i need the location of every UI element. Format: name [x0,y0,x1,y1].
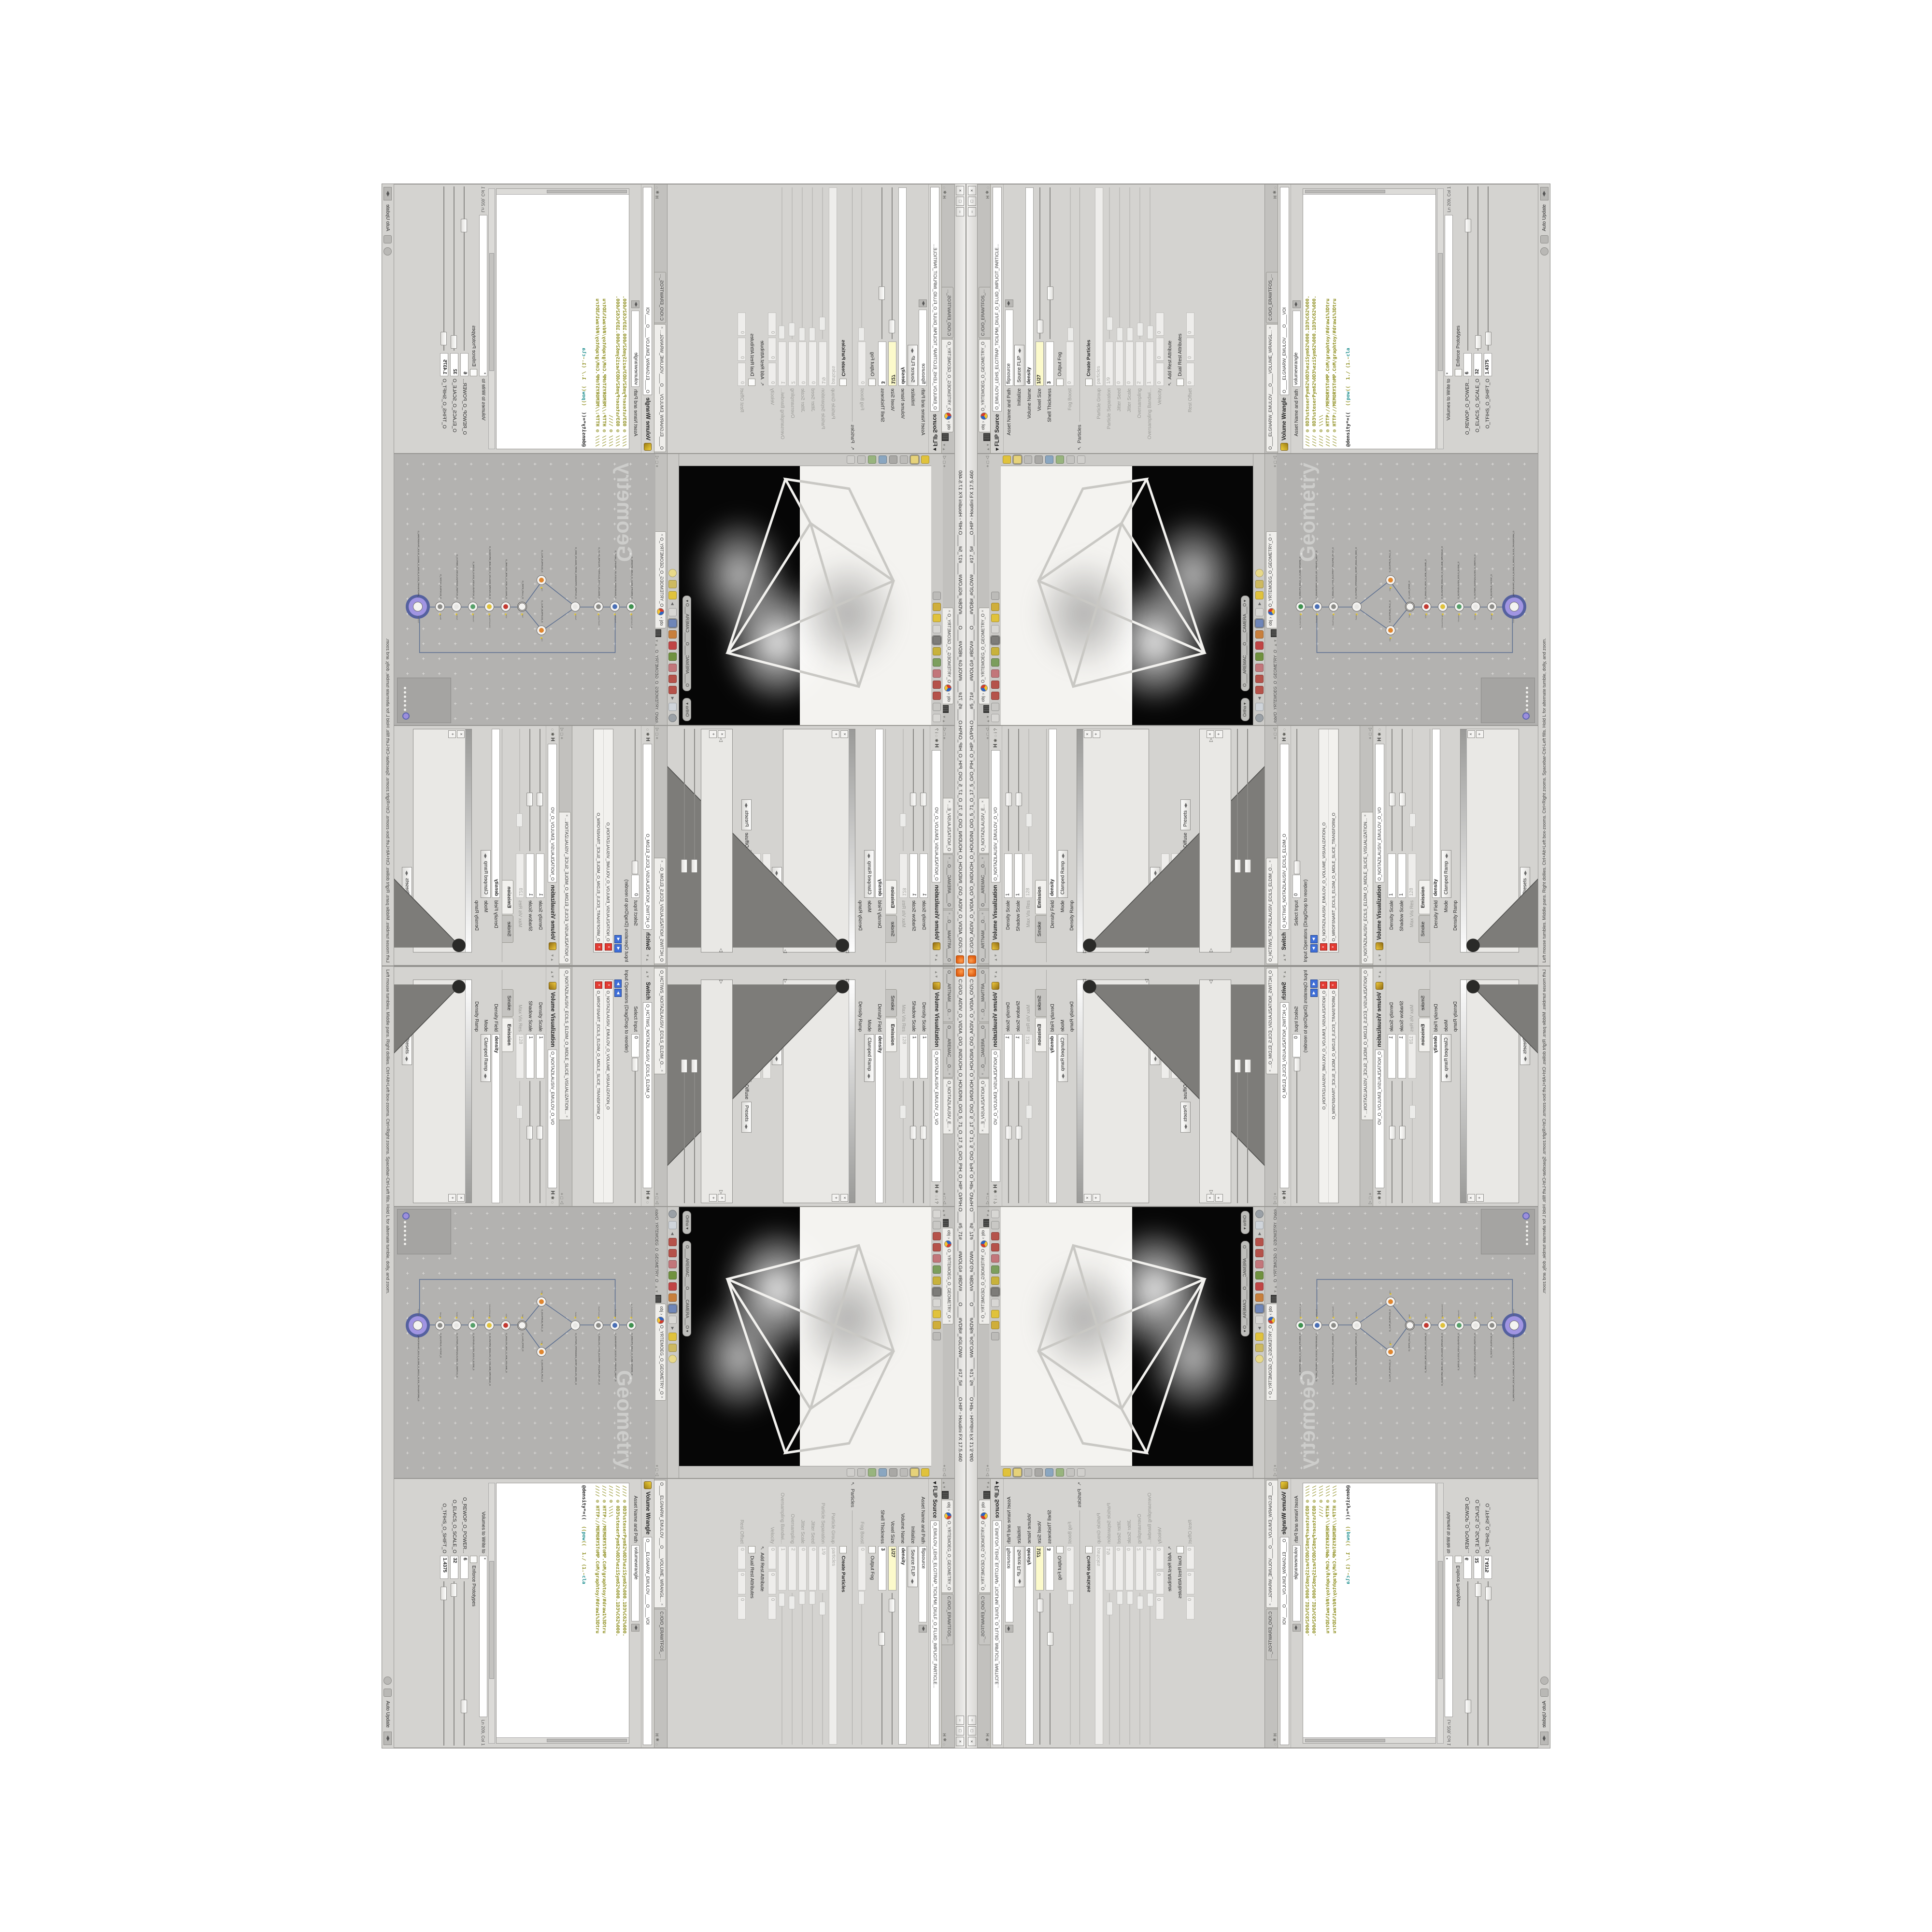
max-vis-res-slider[interactable] [1025,729,1032,851]
code-scrollbar[interactable] [1303,1737,1435,1743]
lasso-tool-icon[interactable] [933,1321,941,1329]
close-button[interactable]: × [968,1737,976,1746]
view-tool-icon[interactable] [991,1288,999,1296]
density-scale-field[interactable]: 1 [920,1034,928,1079]
asset-path-field[interactable]: flipsource [919,1546,927,1622]
rest-offset-x-field[interactable]: 0 [738,1546,746,1569]
flip-pane-tab[interactable]: obj›O_YRTEMOEG_O_GEOMETRY_O [979,1500,990,1593]
list-item[interactable]: ×O_NOITAZILAUSIV_EMULOV_O_VOLUME_VISUALI… [603,980,613,1203]
density-ramp-widget[interactable]: ×+ [1460,980,1519,1203]
pane-tab-camera[interactable]: O____AREMAC___O...× [942,854,953,909]
vex-code-editor[interactable]: //// ⊙ 0D3%steserPym62%0D3%eziSym62%000.… [1303,1483,1436,1744]
pose-tool-icon[interactable] [669,1293,677,1302]
network-node[interactable]: O_EREHPS_EBUC_O_CUBE_SPHERE_Oan_CubeSphe… [625,600,638,613]
nav-up-icon[interactable]: ▲ [551,958,555,962]
stepper-icon[interactable]: ◀▶ [1005,1625,1013,1633]
shell-thickness-slider[interactable] [1046,187,1053,339]
brush-tool-icon[interactable] [933,592,941,600]
tab-close-icon[interactable]: × [654,1396,664,1398]
density-field-input[interactable]: density [1432,729,1440,898]
search-icon[interactable]: ◌ [934,735,939,737]
network-node[interactable]: O_EMARFERIW_NOGYLOP_EREHPS_EBUC_OBodyWir… [1311,1319,1323,1332]
auto-update-stepper[interactable]: ◀▶ [1540,187,1548,200]
shell-thickness-field[interactable]: 3 [878,1546,886,1591]
search-icon[interactable]: ◌ [645,728,650,731]
output-fog-checkbox[interactable] [1056,379,1064,386]
max-vis-res-field[interactable]: 128 [1024,1034,1033,1079]
help-icon[interactable]: ? [934,728,939,731]
nav-down-icon[interactable]: ▼ [935,975,939,979]
pane-split-icon[interactable]: + [942,1464,947,1467]
shadow-scale-field[interactable]: 1 [1014,1034,1023,1079]
rest-offset-y-field[interactable]: 0 [1186,1571,1194,1594]
oversampling-slider[interactable] [1136,187,1143,339]
voxel-size-field[interactable]: 1/27 [888,341,896,386]
ramp-delete-icon[interactable]: × [840,1194,848,1202]
tab-smoke[interactable]: Smoke [886,915,897,943]
jitter-seed-slider[interactable] [809,1593,816,1745]
shell-thickness-field[interactable]: 3 [878,341,886,386]
network-node[interactable]: O_ECAFRUS_PILC_OClip [1384,574,1397,586]
magnet-icon[interactable] [669,1238,677,1246]
film-reel-icon[interactable] [669,714,677,722]
shell-thickness-slider[interactable] [1046,1593,1053,1745]
jitter-scale-slider[interactable] [799,187,806,339]
diffuse-ramp-widget[interactable]: ▷ ▷ ×+ [1199,729,1231,952]
viewport-pane-tab[interactable]: obj›O_YRTEMOEG_O_GEOMETRY_O× [979,608,990,704]
voxel-size-slider[interactable] [889,1593,896,1745]
velocity-y-field[interactable]: 0 [1156,338,1164,361]
particles-section-header[interactable]: ↖Particles [1075,1482,1084,1745]
tab-close-icon[interactable]: × [942,800,952,803]
tab-close-icon[interactable]: × [1363,814,1373,817]
ghost-icon[interactable] [889,1468,897,1477]
density-scale-slider[interactable] [537,1081,544,1203]
magnet-snap-icon[interactable] [991,1232,999,1240]
scatter-icon[interactable] [1255,653,1264,661]
keyframe-icon[interactable] [669,591,677,599]
lens-icon[interactable] [879,456,887,464]
snapshot-icon[interactable] [847,1468,855,1477]
ramp-add-icon[interactable]: + [709,730,717,738]
restore-button[interactable]: □ [956,1726,965,1735]
code-scrollbar[interactable] [497,189,629,195]
shadow-scale-field[interactable]: 1 [1398,1034,1406,1079]
node-name-field[interactable]: O_NOITAZILAUSIV_EMULOV_O_VO [1375,1050,1384,1188]
cursor-icon[interactable] [669,608,677,616]
info-icon[interactable]: i [934,732,939,733]
ghost-icon[interactable] [1035,456,1043,464]
keyframe-icon[interactable] [1255,1333,1264,1341]
search-icon[interactable]: ◌ [942,186,947,189]
brush-tool-icon[interactable] [933,1332,941,1340]
node-name-field[interactable]: O_NOITAZILAUSIV_EMULOV_O_VO [548,1050,557,1188]
minimize-button[interactable]: – [968,207,976,216]
delete-icon[interactable]: × [595,981,602,989]
jitter-seed-field[interactable]: 0 [1115,341,1123,386]
scatter-icon[interactable] [1255,1271,1264,1279]
initialize-dropdown[interactable]: Source FLIP◀▶ [1014,1546,1024,1587]
search-icon[interactable]: ◌ [942,1743,947,1746]
tab-emission[interactable]: Emission [886,880,897,914]
auto-update-label[interactable]: Auto Update [1542,204,1547,231]
network-editor-canvas[interactable]: ++++++++++++++++++++++++++++++++++++++++… [394,1207,655,1478]
node-name-field[interactable]: O_NOITAZILAUSIV_EMULOV_O_VO [932,1050,941,1182]
jack-tool-icon[interactable] [1255,1282,1264,1291]
snapshot-icon[interactable] [1077,456,1085,464]
ramp-add-icon[interactable]: + [709,1194,717,1202]
particle-separation-slider[interactable] [819,187,826,339]
wrangle-pane-tab[interactable]: O____ELGNARW_EMULOV___O____VOLUME_WRANGL… [1266,1480,1278,1608]
oversampling-slider[interactable] [789,1593,796,1745]
ramp-add-icon[interactable]: + [448,730,456,738]
network-pane-tab[interactable]: obj›O_YRTEMOEG_O_GEOMETRY_O× [1266,531,1278,628]
pane-split-icon[interactable]: + [1368,737,1373,739]
scale-field[interactable]: 32 [1474,353,1482,376]
wireframe-icon[interactable] [1024,456,1032,464]
density-ramp-widget[interactable]: ×+ [413,980,472,1203]
code-hscrollbar[interactable] [488,1483,495,1744]
gear-icon[interactable]: ✱ [550,1196,555,1200]
magnet-snap-icon[interactable] [933,692,941,700]
network-node[interactable]: O_HCTIWS_YRTEMOEG_MORF_EMULOV_BDV_OSwitc… [569,600,582,613]
paint-tool-icon[interactable] [991,658,999,667]
initialize-dropdown[interactable]: Source FLIP◀▶ [1014,345,1024,386]
network-node[interactable]: O_EMARFERIW_NOGYLOP_EREHPS_EBUC_OBodyWir… [609,600,621,613]
scale-slider[interactable] [451,186,458,351]
camera-pill[interactable]: O____AREMAC____O____CAMERA___O ▾ [682,596,691,691]
max-vis-res-slider[interactable] [1408,1081,1416,1203]
tab-emission[interactable]: Emission [1035,1018,1046,1051]
pane-maximize-icon[interactable]: □ [560,1197,565,1199]
info-icon[interactable]: i [934,1199,939,1200]
key-tool-icon[interactable] [933,647,941,655]
tab-close-icon[interactable]: × [654,860,664,863]
oversampling-bandwidth-slider[interactable] [779,187,786,339]
switch-pane-tab[interactable]: O_HCTIWS_NOITAZILAUSIV_ECILS_ELDIM_O...× [1266,968,1278,1074]
vex-code-editor[interactable]: //// ⊙ 0D3%steserPym62%0D3%eziSym62%000.… [1303,188,1436,449]
jitter-seed-field[interactable]: 0 [809,1546,817,1591]
render-view[interactable]: Ortho ▾ O____AREMAC____O____CAMERA___O ▾ [1001,1207,1253,1466]
velocity-x-field[interactable]: 0 [1156,1546,1164,1569]
voxel-size-field[interactable]: 1/27 [1036,1546,1044,1591]
ramp-flag-icon[interactable]: ▷ [718,1190,724,1194]
density-scale-field[interactable]: 1 [1388,853,1396,898]
gear-icon[interactable]: ✱ [645,1196,651,1200]
oversampling-bandwidth-field[interactable]: 1 [778,341,786,386]
volume-name-field[interactable]: density [1025,1546,1034,1745]
ramp-delete-icon[interactable]: × [1084,730,1092,738]
network-node[interactable]: O_EREHPS_EBUC_O_CUBE_SPHERE_Oan_CubeSphe… [1294,600,1307,613]
tab-close-icon[interactable]: × [942,857,952,859]
ramp-delete-icon[interactable]: × [1467,1194,1475,1202]
code-hscrollbar[interactable] [1437,1483,1444,1744]
search-icon[interactable]: ◌ [1273,1743,1278,1746]
network-minimap[interactable] [1481,678,1535,723]
dual-rest-checkbox[interactable] [748,1546,755,1553]
mode-dropdown[interactable]: Clamped Ramp◀▶ [864,1034,874,1082]
density-scale-field[interactable]: 1 [536,853,544,898]
ramp-flag-icon[interactable]: ▷ [718,980,724,984]
tab-close-icon[interactable]: × [980,610,990,612]
shift-slider[interactable] [1484,1581,1492,1746]
particle-separation-field[interactable]: 1/9 [1105,1546,1113,1591]
stepper-icon[interactable]: ◀▶ [919,299,927,307]
delete-icon[interactable]: × [1330,981,1337,989]
particles-section-header[interactable]: ↖Particles [848,187,857,450]
diamond-icon[interactable] [1255,580,1264,588]
nav-up-icon[interactable]: ▲ [986,447,990,451]
tab-smoke[interactable]: Smoke [502,989,513,1017]
search-icon[interactable]: ◌ [655,186,660,189]
asset-path-field[interactable]: flipsource [1005,310,1013,386]
enforce-prototypes-checkbox[interactable] [1455,369,1462,376]
help-icon[interactable]: ? [993,728,998,731]
cursor-icon[interactable] [1255,608,1264,616]
magnet-icon[interactable] [669,686,677,694]
rest-offset-x-field[interactable]: 0 [1186,363,1194,386]
network-node[interactable]: O_EMULOV_LEHS_ELCITRAP_TICILPMI_DIULF_OB… [592,1319,605,1332]
enforce-prototypes-checkbox[interactable] [1455,1556,1462,1563]
create-particles-checkbox[interactable] [1085,1546,1093,1553]
view-tool-icon[interactable] [933,636,941,644]
code-scrollbar[interactable] [497,1737,629,1743]
lasso-tool-icon[interactable] [991,1321,999,1329]
network-node[interactable]: O_ECAFRUS_HCTAP_OMerge [1486,600,1498,613]
search-icon[interactable]: ◌ [993,735,998,737]
pane-split-icon[interactable]: + [655,1464,660,1467]
select-input-slider[interactable] [1293,1060,1300,1203]
density-field-input[interactable]: density [1049,1034,1057,1203]
tab-close-icon[interactable]: × [1268,1603,1278,1605]
pane-tab-visualization[interactable]: O_NOITAZILAUSIV_E...× [942,1079,953,1134]
tab-close-icon[interactable]: × [942,610,952,612]
film-reel-icon[interactable] [669,1210,677,1218]
reorder-left-icon[interactable]: ◀ [614,944,622,952]
lock-camera-icon[interactable] [857,456,866,464]
pane-tab-camera[interactable]: O____AREMAC___O...× [979,854,990,909]
network-node[interactable]: O_ELGNARW_EMULOV_O_VOLUME_WRANGLE_OVolum… [483,1319,496,1332]
nav-up-icon[interactable]: ▲ [994,970,998,974]
auto-update-stepper[interactable]: ◀▶ [1540,1732,1548,1745]
ramp-add-icon[interactable]: + [1476,1194,1484,1202]
rest-offset-y-field[interactable]: 0 [738,1571,746,1594]
network-node[interactable]: O_EREHPS_EBUC_O_CUBE_SPHERE_Oan_CubeSphe… [1294,1319,1307,1332]
view-mode-pill[interactable]: Ortho ▾ [682,698,691,721]
pane-split-icon[interactable]: + [655,465,660,467]
render-view[interactable]: Ortho ▾ O____AREMAC____O____CAMERA___O ▾ [679,1207,931,1466]
jitter-scale-slider[interactable] [1126,187,1133,339]
search-icon[interactable]: ◌ [645,1201,650,1204]
volumes-to-write-field[interactable]: * [1445,1556,1453,1717]
gear-icon[interactable]: ✱ [942,1738,947,1742]
volume-name-field[interactable]: density [898,1546,907,1745]
ramp-flag-icon[interactable]: ▷ [782,949,788,953]
restore-button[interactable]: □ [956,197,965,206]
reorder-left-icon[interactable]: ◀ [1310,935,1318,943]
tab-close-icon[interactable]: × [1268,1396,1278,1398]
ramp-flag-icon[interactable]: ▷ [782,979,788,983]
nav-down-icon[interactable]: ▼ [646,975,650,979]
select-input-field[interactable]: 0 [631,1034,639,1057]
snapshot-icon[interactable] [847,456,855,464]
jitter-scale-field[interactable]: 0 [798,1546,807,1591]
network-node[interactable]: O_MROFSNART_ECILS_ELDIM_O_MIDLE_SLICE_TR… [1508,1319,1520,1332]
pane-maximize-icon[interactable]: □ [655,1197,660,1199]
mode-dropdown[interactable]: Clamped Ramp◀▶ [481,850,491,898]
nav-up-icon[interactable]: ▲ [646,970,650,974]
network-node[interactable]: O_NOITAZILAUSIV_ECILS_ELDIM_OVisualize [467,1319,479,1332]
network-node[interactable]: O_NOITAZILAUSIV_ECILS_ELDIM_OVisualize [1453,600,1465,613]
switch-pane-tab[interactable]: O_HCTIWS_NOITAZILAUSIV_ECILS_ELDIM_O...× [654,858,666,964]
network-node[interactable]: O_ECAFRUB_PILC_OClip [535,624,548,637]
magnet-point-icon[interactable] [933,669,941,678]
gear-icon[interactable]: ✱ [934,1190,939,1193]
node-name-field[interactable]: O_NOITAZILAUSIV_EMULOV_O_VO [991,750,1000,882]
network-node[interactable]: O_ECAFRUS_HCTAP_OMerge [1486,1319,1498,1332]
particle-separation-field[interactable]: 1/9 [819,1546,827,1591]
tab-smoke[interactable]: Smoke [1035,989,1046,1017]
lens-icon[interactable] [879,1468,887,1477]
jitter-scale-field[interactable]: 0 [798,341,807,386]
nav-up-icon[interactable]: ▲ [551,970,555,974]
select-tool-icon[interactable] [991,1210,999,1218]
node-name-field[interactable]: O_HCTIWS_NOITAZILAUSIV_ECILS_ELDIM_O [1280,744,1289,930]
network-node[interactable]: O_ECAFRUS_PILC_OClip [1384,1346,1397,1358]
scale-slider[interactable] [1474,1581,1481,1746]
render-flipbook-icon[interactable] [669,703,677,711]
density-field-input[interactable]: density [492,1034,500,1203]
shell-thickness-field[interactable]: 3 [1046,1546,1054,1591]
asset-path-field[interactable]: volumewrangle [631,1545,639,1621]
code-hscrollbar[interactable] [488,188,495,449]
ramp-delete-icon[interactable]: × [718,730,725,738]
shadow-scale-field[interactable]: 1 [1014,853,1023,898]
search-icon[interactable]: ◌ [934,1195,939,1197]
magnet-grid-icon[interactable] [991,681,999,689]
key-tool-icon[interactable] [991,1277,999,1285]
select-input-field[interactable]: 0 [631,875,639,898]
nav-down-icon[interactable]: ▼ [551,975,555,979]
mode-dropdown[interactable]: Clamped Ramp◀▶ [481,1034,491,1082]
network-node[interactable]: O_LLUN_ETAR_ONull [516,1319,528,1332]
auto-update-label[interactable]: Auto Update [1542,1701,1547,1728]
arrow-tool-icon[interactable] [991,1299,999,1307]
visualization-pane-tab[interactable]: O_NOITAZILAUSIV_ECILS_ELDIM_O_MIDLE_SLIC… [1361,968,1373,1120]
particle-group-field[interactable]: particles [1095,187,1103,386]
velocity-z-field[interactable]: 0 [768,313,776,336]
oversampling-field[interactable]: 2 [788,341,796,386]
velocity-y-field[interactable]: 0 [1156,1571,1164,1594]
select-tool-icon[interactable] [933,1210,941,1218]
reorder-left-icon[interactable]: ◀ [1310,944,1318,952]
refresh-icon[interactable] [1540,235,1548,243]
particle-separation-field[interactable]: 1/9 [1105,341,1113,386]
network-editor-canvas[interactable]: ++++++++++++++++++++++++++++++++++++++++… [394,454,655,725]
render-view[interactable]: Ortho ▾ O____AREMAC____O____CAMERA___O ▾ [1001,466,1253,725]
oversampling-slider[interactable] [789,187,796,339]
scatter-icon[interactable] [669,653,677,661]
ramp-flag-icon[interactable]: ▷ [845,949,850,953]
gear-icon[interactable]: ✱ [1272,1738,1278,1742]
network-node[interactable]: O_LLUN_ETAR_ONull [516,600,528,613]
view-mode-pill[interactable]: Ortho ▾ [1241,1211,1250,1234]
node-name-field[interactable]: O_EMULOV_LEHS_ELCITRAP_TICILPMI_DIULF_O_… [993,1520,1002,1745]
gear-icon[interactable]: ✱ [1272,190,1278,194]
pose-tool-icon[interactable] [669,630,677,639]
pane-maximize-icon[interactable]: □ [655,1469,660,1471]
nav-up-icon[interactable]: ▲ [1282,970,1287,974]
asset-path-field[interactable]: volumewrangle [1293,311,1301,387]
camera-pill[interactable]: O____AREMAC____O____CAMERA___O ▾ [1241,596,1250,691]
initialize-dropdown[interactable]: Source FLIP◀▶ [908,1546,918,1587]
ramp-delete-icon[interactable]: × [457,1194,465,1202]
minimize-button[interactable]: – [956,1716,965,1725]
key-tool-icon[interactable] [991,647,999,655]
view-cube-icon[interactable] [1255,619,1264,627]
cursor-icon[interactable] [1255,1316,1264,1324]
grid-toggle-icon[interactable] [1056,1468,1064,1477]
select-input-slider[interactable] [1293,729,1300,872]
point-no-slider[interactable] [1234,729,1241,872]
scale-field[interactable]: 32 [450,353,458,376]
magnet-multi-icon[interactable] [669,1249,677,1257]
density-ramp-widget[interactable]: ▷ ▷ ×+ [783,729,855,952]
pose-tool-icon[interactable] [1255,1293,1264,1302]
voxel-size-field[interactable]: 1/27 [888,1546,896,1591]
flip-pane-tab[interactable]: obj›O_YRTEMOEG_O_GEOMETRY_O [979,339,990,432]
max-vis-res-field[interactable]: 128 [899,1034,908,1079]
power-field[interactable]: 6 [1463,353,1472,376]
dual-rest-checkbox[interactable] [1177,1546,1184,1553]
restore-button[interactable]: □ [968,197,976,206]
max-vis-res-field[interactable]: 128 [1408,1034,1416,1079]
wrangle-pane-tab[interactable]: O____ELGNARW_EMULOV___O____VOLUME_WRANGL… [654,324,666,452]
diffuse-ramp-widget[interactable]: ▷ ▷ ×+ [701,980,733,1203]
position-slider[interactable] [681,729,688,872]
volume-name-field[interactable]: density [898,187,907,386]
shell-thickness-slider[interactable] [879,187,886,339]
gear-icon[interactable]: ✱ [550,732,555,736]
density-scale-slider[interactable] [1005,1081,1012,1203]
lasso-tool-icon[interactable] [991,603,999,611]
density-scale-slider[interactable] [1388,729,1395,851]
nav-down-icon[interactable]: ▼ [994,975,998,979]
tab-smoke[interactable]: Smoke [1035,915,1046,943]
ramp-add-icon[interactable]: + [832,730,839,738]
max-vis-res-field[interactable]: 128 [1408,853,1416,898]
power-slider[interactable] [1464,186,1471,351]
scatter-icon[interactable] [669,1271,677,1279]
shadow-scale-field[interactable]: 1 [526,1034,534,1079]
jitter-scale-field[interactable]: 0 [1125,1546,1134,1591]
ramp-add-icon[interactable]: + [1215,1194,1223,1202]
ramp-flag-icon[interactable]: ▷ [1208,1190,1214,1194]
particle-separation-slider[interactable] [1106,187,1113,339]
select-mode-icon[interactable] [933,614,941,622]
pane-split-icon[interactable]: + [560,1193,565,1195]
particle-group-field[interactable]: particles [829,1546,837,1745]
network-node[interactable]: O_MROFSNART_ECILS_ELDIM_O_MIDLE_SLICE_TR… [412,1319,424,1332]
jitter-seed-field[interactable]: 0 [1115,1546,1123,1591]
select-input-field[interactable]: 0 [1293,875,1301,898]
scale-slider[interactable] [451,1581,458,1746]
network-node[interactable]: O_ECAFRUS_PILC_OClip [535,574,548,586]
info-icon[interactable]: i [993,1199,998,1200]
gear-icon[interactable]: ✱ [985,1738,990,1742]
brush-tool-icon[interactable] [991,592,999,600]
oversampling-field[interactable]: 2 [1136,1546,1144,1591]
